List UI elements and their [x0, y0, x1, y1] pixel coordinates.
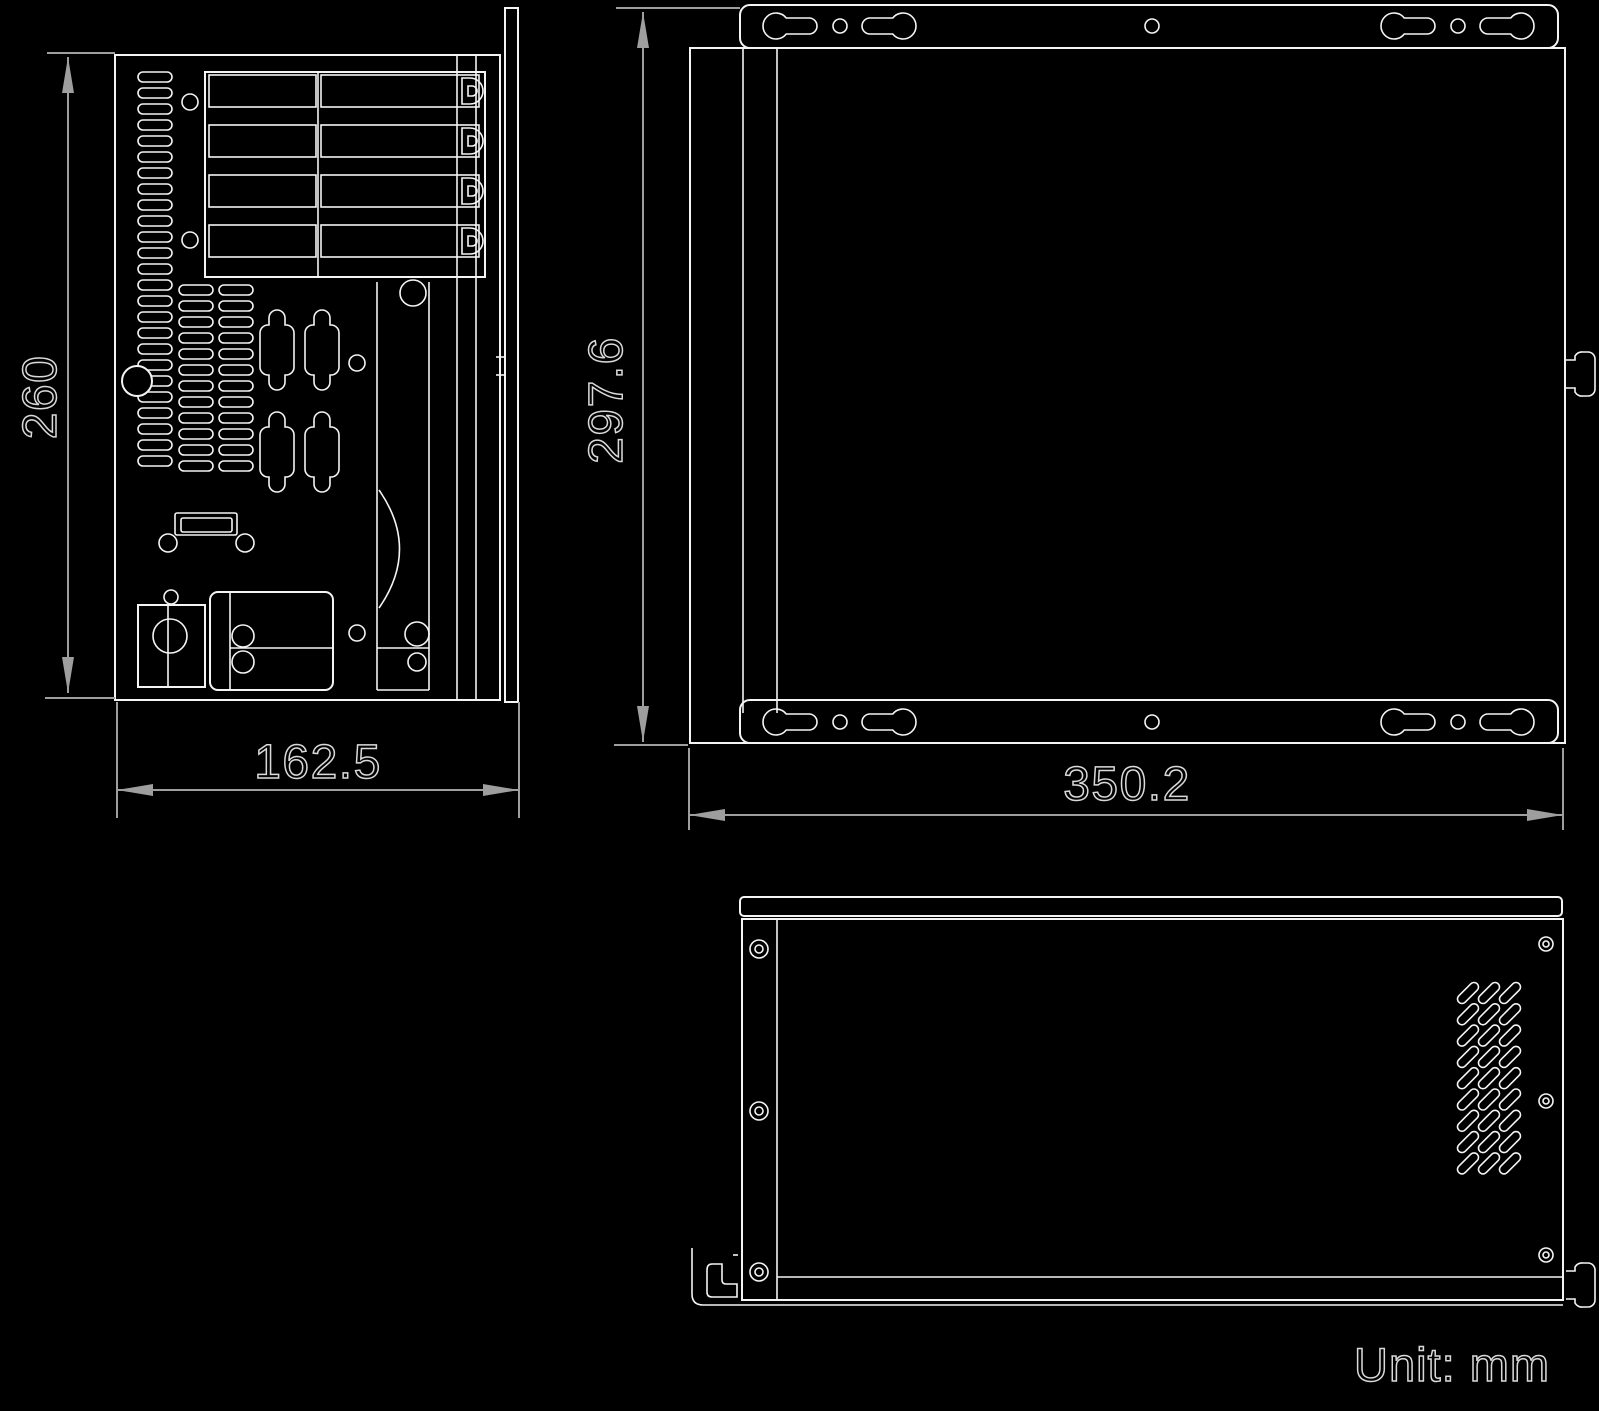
top-view-drawing — [690, 5, 1595, 743]
dimension-label-top-width: 350.2 — [1063, 758, 1191, 811]
side-view-drawing — [692, 897, 1595, 1307]
dimension-label-rear-width: 162.5 — [254, 736, 382, 789]
dimension-label-rear-height: 260 — [14, 355, 67, 440]
rear-view-drawing — [115, 8, 518, 702]
dimension-label-top-height: 297.6 — [580, 336, 633, 464]
technical-drawing-page: 260 162.5 297.6 350.2 Unit: mm — [0, 0, 1599, 1411]
chassis-dimension-drawing: 260 162.5 297.6 350.2 Unit: mm — [0, 0, 1599, 1411]
unit-note: Unit: mm — [1354, 1338, 1550, 1391]
dimension-annotations — [45, 8, 1563, 830]
